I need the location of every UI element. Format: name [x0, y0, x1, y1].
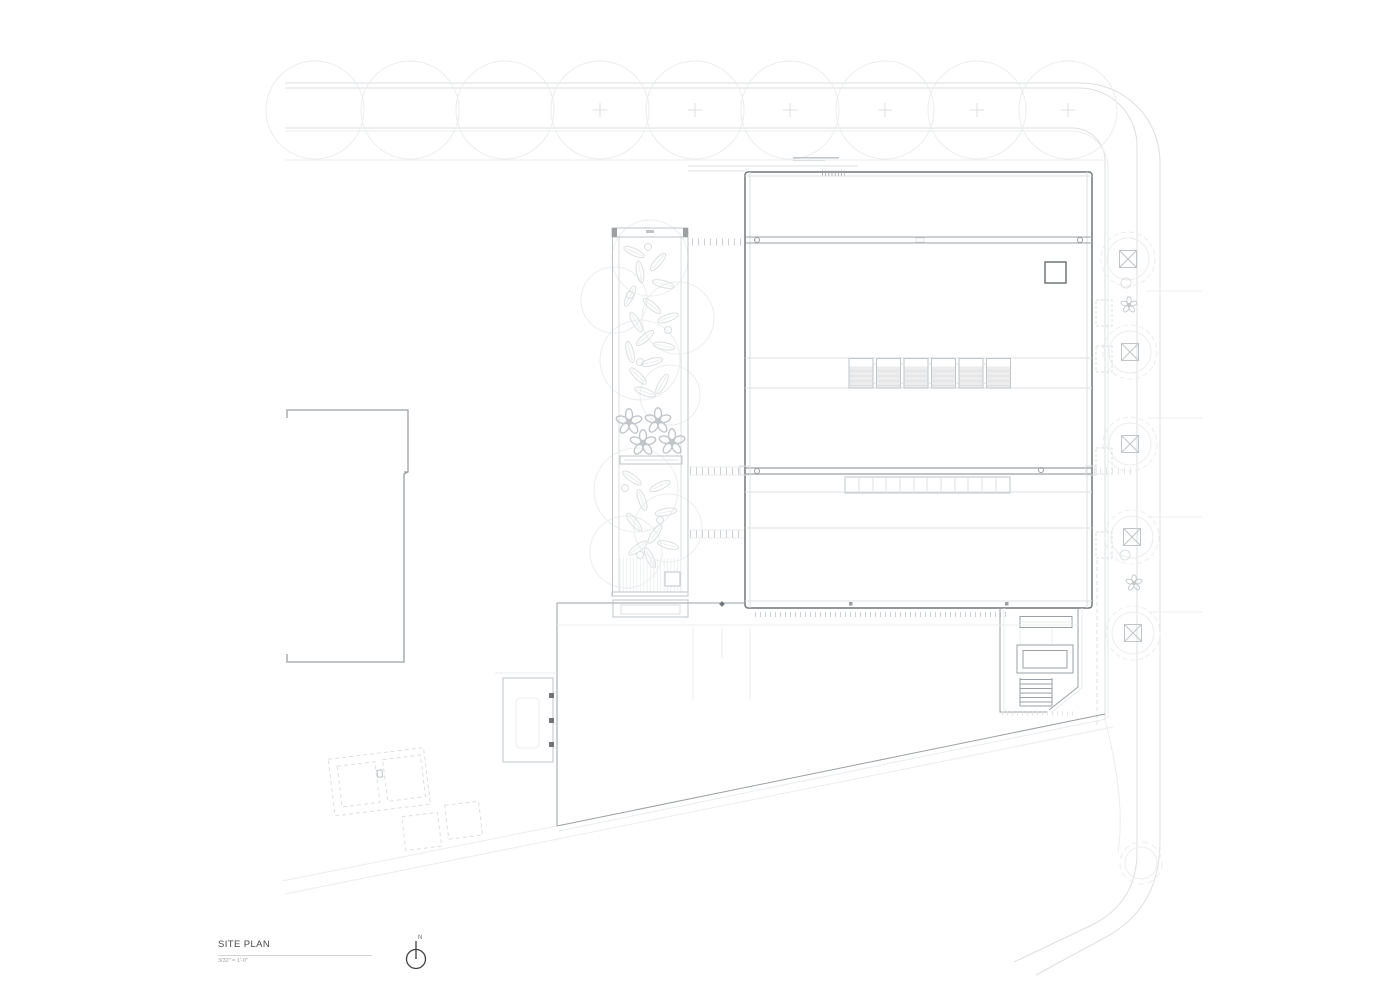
existing-tree-icon — [1106, 606, 1160, 660]
planter-beds — [1096, 300, 1112, 558]
main-building — [688, 157, 1096, 615]
flower-tree-icon — [658, 429, 685, 455]
flower-tree-icon — [644, 408, 671, 434]
clerestory-strip — [745, 477, 1092, 493]
plaza-side-pavilion — [495, 673, 557, 762]
planting-leaves-lower — [621, 469, 680, 570]
louver-unit — [849, 359, 873, 389]
existing-tree-icon — [1105, 510, 1159, 564]
street-tree-icon — [266, 61, 364, 159]
sheet-title: SITE PLAN — [218, 939, 270, 950]
existing-tree-icon — [1103, 325, 1157, 379]
plaza — [495, 600, 1106, 831]
street-tree-row — [266, 61, 1117, 159]
adjacent-building-outline — [287, 410, 408, 662]
stepping-walkways — [688, 242, 745, 538]
stairs — [1020, 678, 1052, 706]
skylight-louver-band — [745, 358, 1092, 388]
title-underline — [218, 955, 372, 956]
louver-unit — [877, 359, 901, 389]
roof-joint-band-lower — [740, 466, 1096, 475]
site-plan-sheet: SITE PLAN 3/32" = 1'-0" N — [0, 0, 1400, 1000]
deck-hatch — [665, 572, 680, 586]
illegible-annotation — [793, 157, 839, 159]
louver-unit — [932, 359, 956, 389]
north-arrow-icon: N — [398, 926, 438, 974]
demolished-structures — [328, 742, 483, 859]
site-plan-drawing — [0, 0, 1400, 1000]
annex-court — [1017, 645, 1073, 673]
plant-icon — [1120, 297, 1137, 313]
roof-hatch — [1045, 262, 1066, 283]
street-tree-icon — [361, 61, 459, 159]
garden-canopies — [581, 220, 714, 588]
existing-tree-icon — [1103, 417, 1157, 471]
louver-unit — [959, 359, 983, 389]
annex-stair-court — [1000, 608, 1082, 714]
existing-tree-row — [1094, 232, 1202, 728]
entry-canopy — [688, 157, 858, 173]
roof-joint-band-upper — [745, 237, 1092, 243]
tree-center-cross-icon — [593, 103, 1075, 117]
south-sidewalk-edges — [282, 727, 1113, 894]
louver-unit — [987, 359, 1011, 389]
garden-strip — [581, 220, 745, 596]
street-tree-icon — [456, 61, 554, 159]
north-label: N — [418, 935, 422, 941]
sheet-scale: 3/32" = 1'-0" — [218, 958, 248, 964]
louver-unit — [904, 359, 928, 389]
street-edges — [285, 83, 1162, 975]
plant-icon — [1125, 575, 1142, 591]
